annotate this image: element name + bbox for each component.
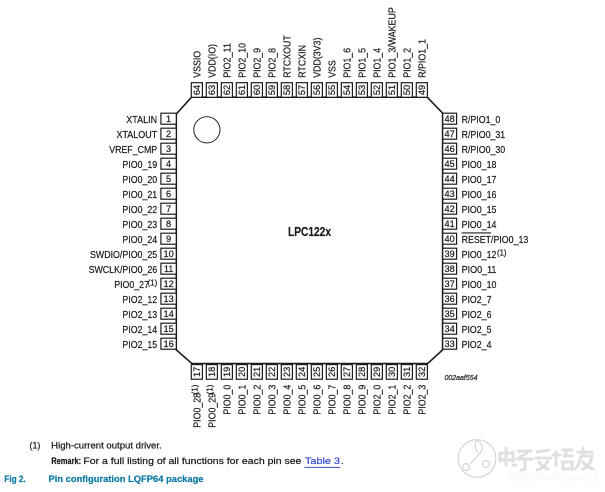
- svg-text:30: 30: [387, 367, 397, 377]
- svg-text:PIO0_6: PIO0_6: [312, 385, 324, 415]
- svg-text:60: 60: [252, 85, 262, 95]
- svg-text:50: 50: [402, 85, 412, 95]
- svg-text:38: 38: [445, 264, 455, 274]
- svg-text:53: 53: [357, 85, 367, 95]
- svg-text:PIO1_5: PIO1_5: [357, 48, 369, 78]
- svg-text:34: 34: [445, 324, 455, 334]
- svg-text:6: 6: [166, 189, 171, 199]
- svg-text:41: 41: [445, 219, 455, 229]
- svg-text:R/PIO0_30: R/PIO0_30: [462, 144, 506, 156]
- svg-text:10: 10: [163, 249, 173, 259]
- svg-text:5: 5: [166, 174, 171, 184]
- svg-text:PIO1_4: PIO1_4: [372, 48, 384, 78]
- svg-text:4: 4: [166, 159, 171, 169]
- svg-text:PIO0_5: PIO0_5: [297, 385, 309, 415]
- svg-text:R/PIO0_31: R/PIO0_31: [462, 129, 506, 141]
- svg-text:64: 64: [192, 85, 202, 95]
- svg-text:PIO0_16: PIO0_16: [462, 189, 497, 201]
- svg-text:PIO0_11: PIO0_11: [462, 264, 497, 276]
- svg-text:RTCXOUT: RTCXOUT: [282, 35, 294, 78]
- svg-text:PIO2_11: PIO2_11: [222, 43, 234, 78]
- svg-text:(1): (1): [30, 441, 41, 451]
- svg-text:40: 40: [445, 234, 455, 244]
- svg-text:20: 20: [237, 367, 247, 377]
- svg-text:11: 11: [164, 264, 174, 274]
- svg-text:XTALIN: XTALIN: [126, 114, 157, 126]
- svg-text:Remark:: Remark:: [51, 456, 81, 466]
- svg-text:32: 32: [417, 367, 427, 377]
- svg-text:PIO0_2: PIO0_2: [252, 385, 264, 415]
- svg-text:www.elecfans.com: www.elecfans.com: [507, 472, 599, 484]
- svg-text:49: 49: [417, 85, 427, 95]
- svg-text:17: 17: [192, 367, 202, 377]
- svg-text:PIO1_6: PIO1_6: [342, 48, 354, 78]
- svg-text:25: 25: [312, 367, 322, 377]
- svg-text:PIO2_0: PIO2_0: [372, 385, 384, 415]
- svg-text:54: 54: [342, 85, 352, 95]
- svg-text:.: .: [341, 456, 343, 466]
- svg-text:PIO2_12: PIO2_12: [122, 294, 157, 306]
- svg-text:RTCXIN: RTCXIN: [297, 45, 309, 78]
- svg-text:(1): (1): [191, 384, 200, 394]
- svg-text:SWCLK/PIO0_26: SWCLK/PIO0_26: [89, 264, 158, 276]
- svg-text:PIO0_19: PIO0_19: [122, 159, 157, 171]
- svg-text:21: 21: [252, 367, 262, 377]
- svg-text:62: 62: [222, 85, 232, 95]
- svg-text:PIO1_2: PIO1_2: [402, 48, 414, 78]
- svg-text:15: 15: [163, 324, 173, 334]
- svg-text:58: 58: [282, 85, 292, 95]
- svg-text:59: 59: [267, 85, 277, 95]
- svg-text:33: 33: [445, 339, 455, 349]
- svg-text:PIO2_13: PIO2_13: [122, 309, 157, 321]
- svg-text:LPC122x: LPC122x: [288, 224, 332, 239]
- svg-text:PIO0_27: PIO0_27: [114, 279, 149, 291]
- svg-text:28: 28: [357, 367, 367, 377]
- svg-text:RESET/PIO0_13: RESET/PIO0_13: [462, 234, 529, 246]
- svg-text:PIO0_4: PIO0_4: [282, 385, 294, 415]
- svg-text:2: 2: [166, 129, 171, 139]
- svg-text:48: 48: [445, 114, 455, 124]
- svg-text:PIO2_8: PIO2_8: [267, 48, 279, 78]
- svg-text:PIO0_21: PIO0_21: [122, 189, 157, 201]
- svg-text:37: 37: [445, 279, 455, 289]
- svg-text:VDD(IO): VDD(IO): [207, 44, 219, 78]
- svg-text:1: 1: [166, 114, 171, 124]
- svg-text:3: 3: [166, 144, 171, 154]
- svg-text:PIO0_14: PIO0_14: [462, 219, 497, 231]
- svg-text:PIO0_8: PIO0_8: [342, 385, 354, 415]
- svg-text:Pin configuration LQFP64 packa: Pin configuration LQFP64 package: [49, 474, 204, 484]
- svg-text:8: 8: [166, 219, 171, 229]
- svg-text:7: 7: [166, 204, 171, 214]
- svg-text:PIO0_29: PIO0_29: [207, 393, 219, 428]
- svg-text:(1): (1): [148, 278, 158, 287]
- svg-text:XTALOUT: XTALOUT: [117, 129, 158, 141]
- svg-text:55: 55: [327, 85, 337, 95]
- svg-text:PIO2_15: PIO2_15: [122, 339, 157, 351]
- svg-text:47: 47: [445, 129, 455, 139]
- svg-text:12: 12: [163, 279, 173, 289]
- svg-text:16: 16: [163, 339, 173, 349]
- svg-text:22: 22: [267, 367, 277, 377]
- svg-text:52: 52: [372, 85, 382, 95]
- svg-text:35: 35: [445, 309, 455, 319]
- svg-text:PIO0_17: PIO0_17: [462, 174, 497, 186]
- svg-text:PIO0_22: PIO0_22: [122, 204, 157, 216]
- svg-text:PIO0_9: PIO0_9: [357, 385, 369, 415]
- svg-text:VSSIO: VSSIO: [192, 51, 204, 78]
- svg-text:VREF_CMP: VREF_CMP: [109, 144, 157, 156]
- svg-text:PIO2_9: PIO2_9: [252, 48, 264, 78]
- svg-text:PIO2_2: PIO2_2: [402, 385, 414, 415]
- svg-text:39: 39: [445, 249, 455, 259]
- svg-text:PIO0_1: PIO0_1: [237, 385, 249, 415]
- svg-text:(1): (1): [497, 248, 507, 257]
- svg-text:PIO0_23: PIO0_23: [122, 219, 157, 231]
- svg-text:23: 23: [282, 367, 292, 377]
- svg-text:13: 13: [163, 294, 173, 304]
- svg-text:PIO0_10: PIO0_10: [462, 279, 497, 291]
- svg-text:002aaf554: 002aaf554: [445, 373, 478, 382]
- svg-text:PIO0_7: PIO0_7: [327, 385, 339, 415]
- svg-text:PIO2_4: PIO2_4: [462, 339, 492, 351]
- svg-text:(1): (1): [206, 384, 215, 394]
- svg-text:PIO0_20: PIO0_20: [122, 174, 157, 186]
- svg-text:44: 44: [445, 174, 455, 184]
- svg-text:PIO0_15: PIO0_15: [462, 204, 497, 216]
- svg-text:24: 24: [297, 367, 307, 377]
- svg-text:45: 45: [445, 159, 455, 169]
- svg-text:29: 29: [372, 367, 382, 377]
- svg-text:PIO2_6: PIO2_6: [462, 309, 492, 321]
- svg-text:56: 56: [312, 85, 322, 95]
- svg-text:51: 51: [387, 85, 397, 95]
- svg-text:VSS: VSS: [327, 60, 339, 78]
- svg-text:PIO0_18: PIO0_18: [462, 159, 497, 171]
- svg-text:42: 42: [445, 204, 455, 214]
- svg-text:High-current output driver.: High-current output driver.: [51, 441, 162, 451]
- svg-text:VDD(3V3): VDD(3V3): [312, 38, 324, 78]
- svg-text:PIO2_5: PIO2_5: [462, 324, 492, 336]
- svg-text:PIO0_3: PIO0_3: [267, 385, 279, 415]
- svg-text:Fig 2.: Fig 2.: [4, 474, 26, 484]
- svg-text:PIO2_3: PIO2_3: [417, 385, 429, 415]
- svg-text:18: 18: [207, 367, 217, 377]
- svg-text:PIO0_12: PIO0_12: [462, 249, 497, 261]
- svg-text:57: 57: [297, 85, 307, 95]
- svg-text:SWDIO/PIO0_25: SWDIO/PIO0_25: [90, 249, 157, 261]
- svg-text:PIO2_14: PIO2_14: [122, 324, 157, 336]
- svg-text:46: 46: [445, 144, 455, 154]
- svg-text:9: 9: [166, 234, 171, 244]
- svg-text:PIO2_1: PIO2_1: [387, 385, 399, 415]
- svg-text:R/PIO1_1: R/PIO1_1: [417, 39, 429, 78]
- svg-text:43: 43: [445, 189, 455, 199]
- svg-text:14: 14: [163, 309, 173, 319]
- svg-text:26: 26: [327, 367, 337, 377]
- svg-text:PIO1_3/WAKEUP: PIO1_3/WAKEUP: [387, 7, 399, 78]
- svg-text:PIO2_7: PIO2_7: [462, 294, 492, 306]
- svg-text:63: 63: [207, 85, 217, 95]
- svg-text:61: 61: [237, 85, 247, 95]
- svg-text:31: 31: [402, 367, 412, 377]
- svg-text:PIO0_28: PIO0_28: [192, 393, 204, 428]
- svg-text:For a full listing of all func: For a full listing of all functions for …: [83, 456, 301, 466]
- svg-text:36: 36: [445, 294, 455, 304]
- svg-text:PIO0_24: PIO0_24: [122, 234, 157, 246]
- svg-text:27: 27: [342, 367, 352, 377]
- svg-text:19: 19: [222, 367, 232, 377]
- svg-text:Table 3: Table 3: [305, 456, 340, 466]
- svg-text:R/PIO1_0: R/PIO1_0: [462, 114, 501, 126]
- svg-text:PIO0_0: PIO0_0: [222, 385, 234, 415]
- svg-text:PIO2_10: PIO2_10: [237, 43, 249, 78]
